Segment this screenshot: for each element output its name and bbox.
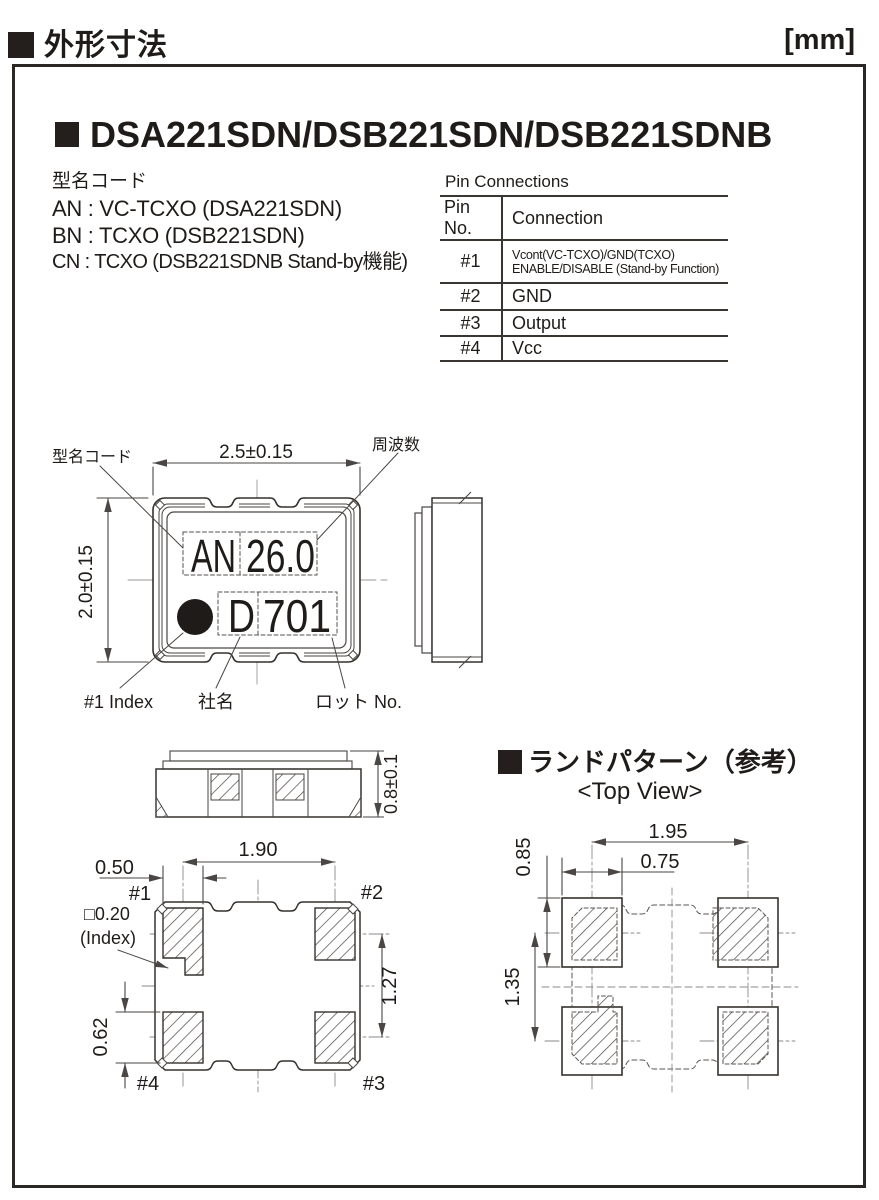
index-label: (Index): [80, 928, 136, 948]
pin3-label: #3: [363, 1073, 385, 1095]
dim-pitch-h-value: 1.90: [239, 839, 278, 861]
marking-frequency: 26.0: [246, 530, 315, 582]
dim-pad-w-value: 0.50: [95, 857, 134, 879]
land-pattern-drawing: 1.95 0.75 0.85 1.35: [502, 821, 798, 1092]
pad-4: [163, 1012, 203, 1063]
index-size-label: □0.20: [84, 904, 130, 924]
pad-3: [315, 1012, 355, 1063]
dim-thickness-value: 0.8±0.1: [381, 754, 401, 814]
pin1-label: #1: [129, 883, 151, 905]
top-view-drawing: AN 26.0 D 701 2.5±0.15 2.0±0.15: [52, 436, 420, 712]
dim-height-value: 2.0±0.15: [76, 545, 97, 619]
front-view-drawing: 0.8±0.1: [156, 751, 401, 817]
label-model-code: 型名コード: [52, 448, 132, 466]
side-view-drawing: [415, 492, 482, 668]
label-frequency: 周波数: [372, 436, 420, 454]
datasheet-page: 外形寸法 [mm] DSA221SDN/DSB221SDN/DSB221SDNB…: [0, 0, 879, 1200]
castellation-sections: [156, 769, 361, 817]
dimension-drawings: AN 26.0 D 701 2.5±0.15 2.0±0.15: [0, 0, 879, 1200]
dim-pad-l-value: 0.62: [90, 1018, 112, 1057]
dim-pad-height: [538, 856, 560, 967]
dim-pad-w-value: 0.75: [641, 851, 680, 873]
marking-model-code: AN: [191, 530, 236, 582]
dim-pad-h-value: 0.85: [513, 838, 535, 877]
dim-width: [153, 463, 360, 495]
dim-pitch-v-value: 1.27: [379, 967, 401, 1006]
label-company: 社名: [198, 692, 234, 712]
pin1-index-dot: [177, 599, 213, 635]
dim-width-value: 2.5±0.15: [219, 442, 293, 463]
marking-company: D: [228, 590, 255, 642]
pin4-label: #4: [137, 1073, 159, 1095]
dim-pitch-h-value: 1.95: [649, 821, 688, 843]
label-lot-number: ロット No.: [315, 692, 402, 712]
dim-pitch-v-value: 1.35: [502, 968, 524, 1007]
pin2-label: #2: [361, 882, 383, 904]
pad-2: [315, 908, 355, 960]
projected-pads: [572, 908, 768, 1064]
marking-lot-number: 701: [263, 590, 331, 642]
label-pin1-index: #1 Index: [84, 692, 153, 712]
bottom-view-drawing: 1.90 0.50 1.27 0.62 □0.20: [80, 839, 401, 1095]
